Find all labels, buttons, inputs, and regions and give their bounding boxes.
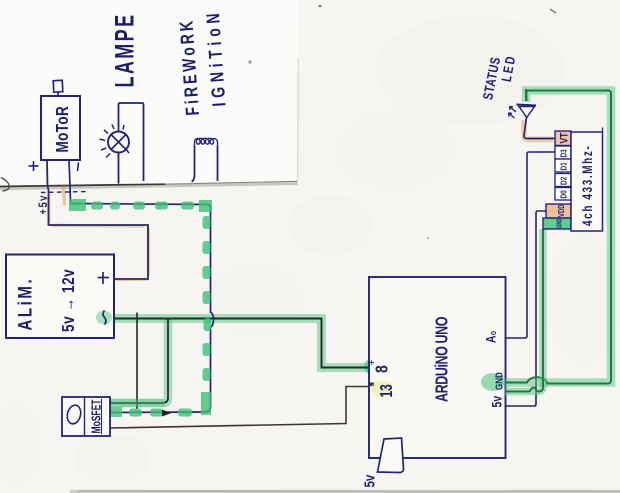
- svg-text:GND: GND: [494, 372, 505, 390]
- svg-text:D1: D1: [559, 162, 569, 170]
- svg-text:8: 8: [373, 365, 392, 373]
- svg-text:VT: VT: [559, 133, 571, 144]
- svg-text:A₀: A₀: [483, 331, 499, 343]
- svg-text:D2: D2: [559, 177, 569, 185]
- svg-text:ALiM.: ALiM.: [14, 277, 36, 331]
- svg-text:5v → 12v: 5v → 12v: [59, 269, 78, 332]
- svg-text:VDD: VDD: [556, 204, 566, 217]
- svg-text:D3: D3: [559, 149, 569, 157]
- svg-text:ARDUiNO UNO: ARDUiNO UNO: [433, 316, 453, 402]
- svg-text:5v: 5v: [361, 474, 378, 487]
- svg-text:5v: 5v: [489, 396, 505, 408]
- svg-text:GND: GND: [556, 218, 564, 228]
- svg-text:4ch 433.Mhz-: 4ch 433.Mhz-: [579, 145, 595, 226]
- svg-text:LAMPE: LAMPE: [109, 13, 140, 88]
- svg-text:MoToR: MoToR: [53, 106, 72, 153]
- svg-text:D0: D0: [559, 190, 569, 198]
- svg-text:+5v: +5v: [37, 194, 50, 214]
- svg-text:13: 13: [377, 384, 397, 397]
